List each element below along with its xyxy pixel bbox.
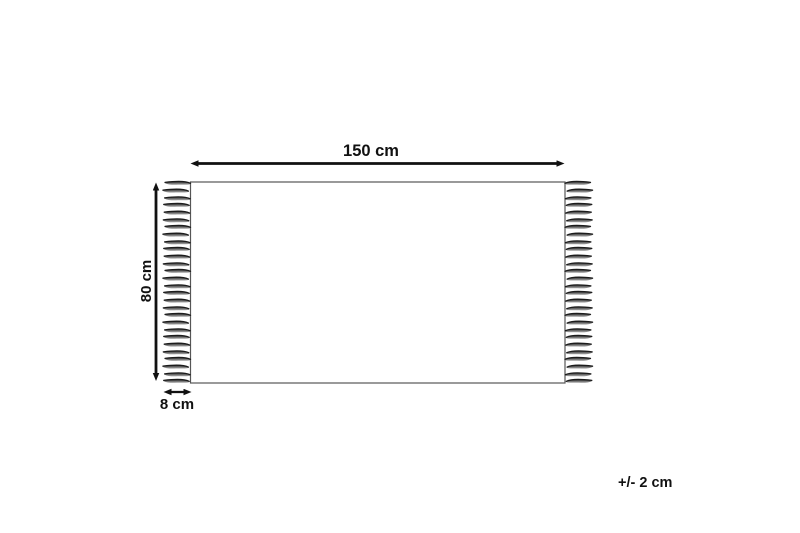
tolerance-label: +/- 2 cm [618,475,672,491]
fringe-dimension-label: 8 cm [160,396,194,413]
rug-outline [191,182,566,383]
rug-size-diagram: 150 cm 80 cm 8 cm +/- 2 cm [0,0,800,533]
rug-fringes-right-icon [565,181,594,383]
height-dimension-label: 80 cm [138,260,155,303]
width-dimension: 150 cm [198,142,558,164]
height-dimension: 80 cm [138,190,156,375]
fringe-dimension: 8 cm [160,392,194,413]
width-dimension-label: 150 cm [343,142,399,160]
rug-fringes-left-icon [162,181,191,383]
product-dimension-diagram: 150 cm 80 cm 8 cm +/- 2 cm [0,0,800,533]
